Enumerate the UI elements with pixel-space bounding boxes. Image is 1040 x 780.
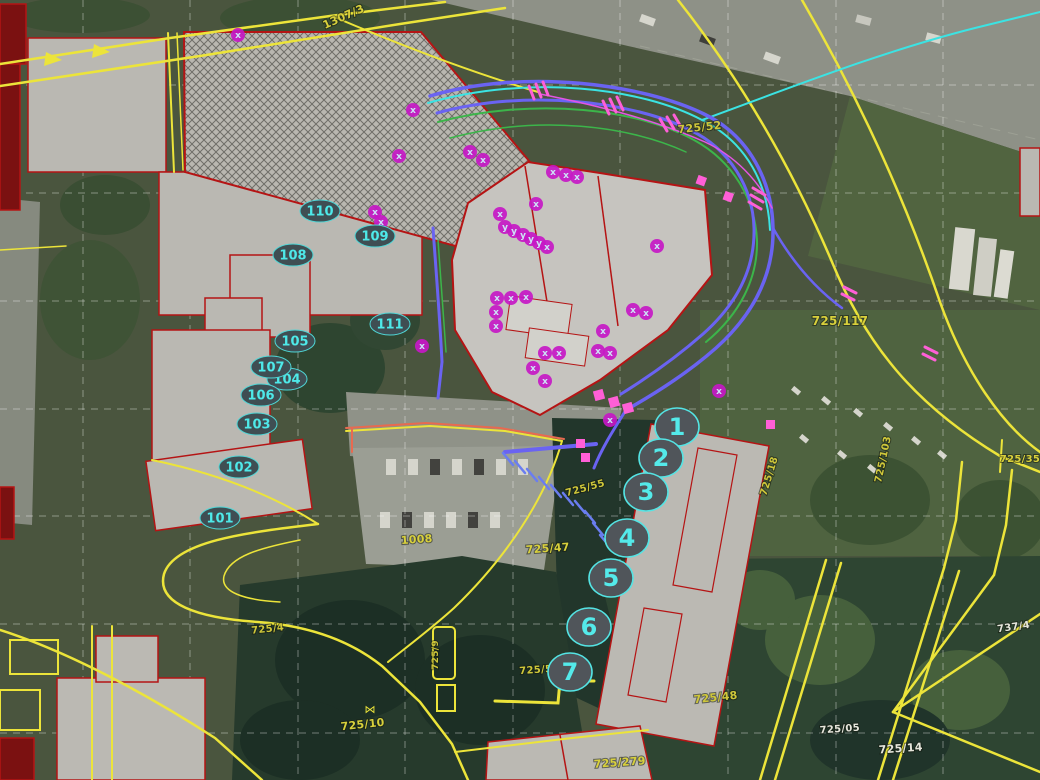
parcel-label: 725/117	[812, 314, 869, 328]
route-point-4[interactable]: 4	[605, 519, 649, 557]
utility-point-marker[interactable]: x	[712, 384, 726, 398]
utility-point-marker[interactable]: x	[552, 346, 566, 360]
svg-text:x: x	[542, 349, 548, 359]
utility-point-marker[interactable]: x	[529, 197, 543, 211]
utility-point-marker[interactable]: x	[489, 319, 503, 333]
utility-point-marker[interactable]: x	[406, 103, 420, 117]
svg-text:7: 7	[562, 658, 579, 686]
route-point-5[interactable]: 5	[589, 559, 633, 597]
route-point-3[interactable]: 3	[624, 473, 668, 511]
svg-text:110: 110	[306, 205, 333, 220]
survey-point-102[interactable]: 102	[219, 456, 259, 478]
parcel-label: 725/35	[1000, 454, 1040, 465]
svg-text:x: x	[595, 347, 601, 357]
svg-text:x: x	[607, 349, 613, 359]
survey-point-108[interactable]: 108	[273, 244, 313, 266]
survey-point-109[interactable]: 109	[355, 225, 395, 247]
svg-text:107: 107	[257, 361, 284, 376]
survey-point-111[interactable]: 111	[370, 313, 410, 335]
utility-point-marker[interactable]: x	[603, 346, 617, 360]
utility-point-marker[interactable]: x	[591, 344, 605, 358]
svg-text:111: 111	[376, 318, 403, 333]
svg-text:105: 105	[281, 335, 308, 350]
route-point-2[interactable]: 2	[639, 439, 683, 477]
svg-text:x: x	[550, 168, 556, 178]
parcel-label: 1008	[400, 532, 433, 547]
utility-point-marker[interactable]: x	[626, 303, 640, 317]
utility-point-marker[interactable]: x	[596, 324, 610, 338]
survey-point-105[interactable]: 105	[275, 330, 315, 352]
building-dark-red	[0, 4, 26, 64]
svg-text:x: x	[410, 106, 416, 116]
utility-point-marker[interactable]: x	[570, 170, 584, 184]
svg-text:x: x	[563, 171, 569, 181]
svg-text:x: x	[494, 294, 500, 304]
svg-text:x: x	[630, 306, 636, 316]
svg-text:x: x	[396, 152, 402, 162]
svg-text:x: x	[533, 200, 539, 210]
survey-point-110[interactable]: 110	[300, 200, 340, 222]
survey-point-103[interactable]: 103	[237, 413, 277, 435]
utility-point-marker[interactable]: x	[538, 346, 552, 360]
svg-text:3: 3	[638, 478, 655, 506]
building-dark-red	[0, 738, 34, 780]
utility-point-marker[interactable]: x	[476, 153, 490, 167]
svg-text:x: x	[497, 210, 503, 220]
svg-text:x: x	[574, 173, 580, 183]
svg-text:x: x	[654, 242, 660, 252]
svg-text:2: 2	[653, 444, 670, 472]
utility-point-marker[interactable]: x	[540, 240, 554, 254]
utility-point-marker[interactable]: x	[650, 239, 664, 253]
svg-text:x: x	[467, 148, 473, 158]
svg-text:x: x	[493, 322, 499, 332]
svg-text:101: 101	[206, 512, 233, 527]
svg-text:x: x	[493, 308, 499, 318]
svg-text:5: 5	[603, 564, 620, 592]
survey-point-107[interactable]: 107	[251, 356, 291, 378]
utility-point-marker[interactable]: x	[519, 290, 533, 304]
svg-text:103: 103	[243, 418, 270, 433]
utility-point-marker[interactable]: x	[639, 306, 653, 320]
svg-text:x: x	[600, 327, 606, 337]
map-svg: 1307/3725/52725/117725/35725/103725/5572…	[0, 0, 1040, 780]
svg-text:108: 108	[279, 249, 306, 264]
utility-point-marker[interactable]: x	[526, 361, 540, 375]
utility-point-marker[interactable]: x	[493, 207, 507, 221]
svg-text:6: 6	[581, 613, 598, 641]
svg-text:x: x	[544, 243, 550, 253]
survey-symbol: ⋈	[365, 703, 376, 716]
parcel-label: 725/9	[431, 640, 441, 670]
utility-point-marker[interactable]: x	[538, 374, 552, 388]
svg-text:x: x	[607, 416, 613, 426]
utility-point-marker[interactable]: x	[546, 165, 560, 179]
building-dark-red	[0, 487, 14, 539]
utility-point-marker[interactable]: x	[490, 291, 504, 305]
svg-text:x: x	[480, 156, 486, 166]
building-bottom-left	[57, 678, 205, 780]
svg-text:109: 109	[361, 230, 388, 245]
survey-point-106[interactable]: 106	[241, 384, 281, 406]
map-canvas[interactable]: 1307/3725/52725/117725/35725/103725/5572…	[0, 0, 1040, 780]
svg-text:x: x	[556, 349, 562, 359]
survey-point-101[interactable]: 101	[200, 507, 240, 529]
route-point-6[interactable]: 6	[567, 608, 611, 646]
utility-point-marker[interactable]: x	[231, 28, 245, 42]
svg-text:x: x	[530, 364, 536, 374]
svg-text:106: 106	[247, 389, 274, 404]
svg-text:102: 102	[225, 461, 252, 476]
utility-point-marker[interactable]: x	[415, 339, 429, 353]
svg-text:x: x	[523, 293, 529, 303]
svg-text:x: x	[235, 31, 241, 41]
utility-point-marker[interactable]: x	[392, 149, 406, 163]
svg-text:x: x	[716, 387, 722, 397]
utility-point-marker[interactable]: x	[463, 145, 477, 159]
svg-text:x: x	[542, 377, 548, 387]
svg-text:x: x	[508, 294, 514, 304]
utility-point-marker[interactable]: x	[504, 291, 518, 305]
utility-point-marker[interactable]: x	[603, 413, 617, 427]
svg-text:x: x	[643, 309, 649, 319]
utility-point-marker[interactable]: x	[489, 305, 503, 319]
svg-text:1: 1	[669, 413, 686, 441]
svg-text:x: x	[419, 342, 425, 352]
building-right-edge	[1020, 148, 1040, 216]
route-point-7[interactable]: 7	[548, 653, 592, 691]
svg-text:4: 4	[619, 524, 636, 552]
